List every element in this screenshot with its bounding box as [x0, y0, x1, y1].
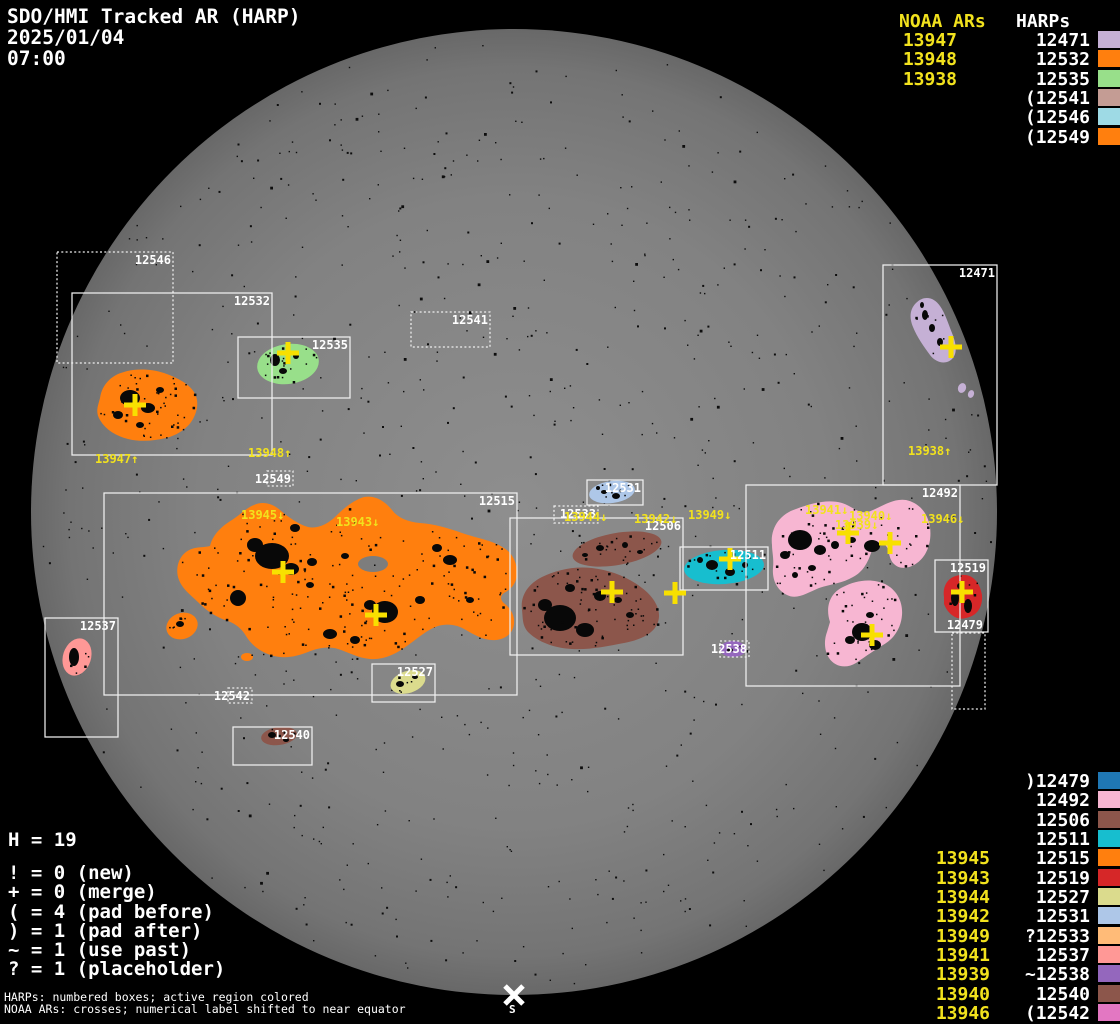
noise-speckle — [435, 471, 436, 472]
sunspot-speckle — [449, 596, 451, 598]
sunspot-speckle — [411, 681, 413, 683]
sunspot-speckle — [375, 544, 378, 547]
sunspot-speckle — [607, 596, 609, 598]
noaa-ar-label: 13949↓ — [688, 509, 731, 521]
sunspot-speckle — [865, 553, 868, 556]
sunspot-speckle — [165, 405, 167, 407]
noaa-column-header: NOAA ARs — [899, 11, 986, 32]
noise-speckle — [241, 160, 243, 162]
noise-speckle — [65, 489, 66, 490]
sunspot-speckle — [896, 555, 898, 557]
noise-speckle — [283, 683, 284, 684]
color-swatch — [1098, 985, 1120, 1002]
noise-speckle — [688, 209, 689, 210]
noise-speckle — [744, 248, 745, 249]
noise-speckle — [656, 432, 657, 433]
noise-speckle — [570, 385, 571, 386]
noise-speckle — [858, 207, 859, 208]
sunspot-speckle — [897, 535, 899, 537]
sunspot-speckle — [500, 592, 502, 594]
sunspot-speckle — [627, 625, 629, 627]
noise-speckle — [404, 358, 407, 361]
noise-speckle — [340, 479, 341, 480]
sunspot-speckle — [233, 592, 235, 594]
noise-speckle — [693, 719, 694, 720]
noise-speckle — [419, 709, 420, 710]
sunspot-speckle — [595, 589, 598, 592]
noise-speckle — [819, 325, 820, 326]
sunspot-speckle — [384, 630, 386, 632]
sunspot-speckle — [643, 615, 645, 617]
noise-speckle — [892, 269, 893, 270]
noise-speckle — [784, 468, 785, 469]
sunspot-speckle — [584, 588, 587, 591]
sunspot-speckle — [561, 624, 563, 626]
color-swatch — [1098, 907, 1120, 924]
noise-speckle — [742, 619, 743, 620]
noise-speckle — [734, 263, 736, 265]
sunspot-speckle — [88, 656, 90, 658]
sunspot-speckle — [371, 638, 373, 640]
noise-speckle — [93, 547, 94, 548]
noise-speckle — [101, 528, 102, 529]
sunspot-speckle — [375, 576, 377, 578]
noise-speckle — [637, 325, 639, 327]
sunspot-speckle — [302, 643, 305, 646]
noise-speckle — [270, 187, 273, 190]
noise-speckle — [206, 420, 207, 421]
noise-speckle — [690, 733, 692, 735]
noise-speckle — [296, 152, 297, 153]
noise-speckle — [703, 701, 704, 702]
sunspot-speckle — [810, 584, 813, 587]
sunspot-speckle — [491, 619, 493, 621]
sunspot-speckle — [384, 591, 386, 593]
sunspot-speckle — [329, 597, 331, 599]
noaa-harp-row: 12492 — [0, 790, 1120, 809]
sunspot — [814, 545, 826, 555]
sunspot-speckle — [448, 550, 450, 552]
harp-number: 12506 — [1036, 810, 1090, 831]
color-swatch — [1098, 108, 1120, 125]
noise-speckle — [288, 184, 289, 185]
noise-speckle — [312, 193, 313, 194]
noise-speckle — [253, 178, 254, 179]
harp-number: ?12533 — [1025, 926, 1090, 947]
sunspot-speckle — [246, 530, 249, 533]
noise-speckle — [420, 379, 421, 380]
noise-speckle — [885, 314, 887, 316]
noise-speckle — [335, 661, 336, 662]
noise-speckle — [550, 378, 553, 381]
noise-speckle — [580, 766, 583, 769]
sunspot — [864, 540, 880, 552]
sunspot-speckle — [850, 546, 852, 548]
sunspot-speckle — [332, 586, 335, 589]
sunspot-speckle — [580, 603, 582, 605]
sunspot-speckle — [625, 556, 627, 558]
noise-speckle — [194, 658, 195, 659]
noise-speckle — [180, 206, 181, 207]
noise-speckle — [666, 766, 667, 767]
noise-speckle — [523, 717, 524, 718]
legend-item: + = 0 (merge) — [8, 883, 225, 902]
noise-speckle — [322, 410, 323, 411]
sunspot-speckle — [862, 626, 865, 629]
color-swatch — [1098, 791, 1120, 808]
noaa-ar-number: 13945 — [936, 848, 990, 869]
sunspot-speckle — [144, 398, 146, 400]
noise-speckle — [441, 717, 442, 718]
noaa-ar-label: 13939↓ — [835, 519, 878, 531]
noise-speckle — [792, 174, 794, 176]
noise-speckle — [219, 191, 221, 193]
noise-speckle — [665, 622, 666, 623]
noise-speckle — [834, 717, 835, 718]
noise-speckle — [707, 326, 709, 328]
sunspot-speckle — [136, 388, 139, 391]
sunspot-speckle — [112, 411, 115, 414]
sunspot-speckle — [247, 559, 250, 562]
noise-speckle — [86, 368, 87, 369]
noise-speckle — [427, 343, 429, 345]
noise-speckle — [453, 160, 454, 161]
noaa-harp-row: 12506 — [0, 810, 1120, 829]
sunspot-speckle — [454, 589, 456, 591]
sunspot-speckle — [574, 626, 577, 629]
sunspot-speckle — [585, 558, 588, 561]
noise-speckle — [653, 574, 655, 576]
sunspot-speckle — [134, 377, 136, 379]
sunspot-speckle — [465, 596, 468, 599]
sunspot-speckle — [322, 602, 324, 604]
sunspot-speckle — [272, 729, 274, 731]
noise-speckle — [635, 263, 638, 266]
noise-speckle — [361, 397, 362, 398]
sunspot-speckle — [744, 564, 746, 566]
noise-speckle — [401, 495, 403, 497]
noise-speckle — [77, 336, 78, 337]
sunspot — [247, 538, 263, 552]
noise-speckle — [342, 215, 343, 216]
noise-speckle — [399, 208, 401, 210]
sunspot-speckle — [883, 607, 885, 609]
noise-speckle — [382, 426, 384, 428]
noise-speckle — [447, 263, 448, 264]
noise-speckle — [176, 448, 177, 449]
noise-speckle — [208, 188, 209, 189]
noise-speckle — [488, 688, 489, 689]
noise-speckle — [307, 471, 308, 472]
noise-speckle — [486, 260, 489, 263]
noise-speckle — [744, 388, 745, 389]
noise-speckle — [177, 749, 179, 751]
noise-speckle — [689, 220, 690, 221]
sunspot-speckle — [567, 583, 569, 585]
harp-count-label: H = 19 — [8, 829, 77, 851]
sunspot-speckle — [173, 424, 175, 426]
sunspot-speckle — [789, 540, 791, 542]
noise-speckle — [320, 439, 322, 441]
sunspot-speckle — [596, 621, 598, 623]
sunspot-speckle — [626, 593, 628, 595]
sunspot-speckle — [909, 543, 911, 545]
sunspot-speckle — [182, 562, 184, 564]
noise-speckle — [302, 247, 303, 248]
noise-speckle — [745, 220, 746, 221]
sunspot-speckle — [855, 659, 857, 661]
sunspot-speckle — [149, 423, 151, 425]
noise-speckle — [628, 402, 629, 403]
noaa-harp-row: (12541 — [0, 88, 1120, 107]
sunspot-speckle — [348, 592, 350, 594]
sunspot-speckle — [283, 362, 286, 365]
noise-speckle — [784, 296, 785, 297]
sunspot-speckle — [808, 523, 811, 526]
noise-speckle — [238, 245, 239, 246]
sunspot-speckle — [284, 626, 286, 628]
sunspot-speckle — [561, 621, 564, 624]
sunspot-speckle — [428, 618, 430, 620]
sunspot-speckle — [717, 577, 720, 580]
sunspot-speckle — [851, 555, 854, 558]
sunspot-speckle — [551, 642, 553, 644]
sunspot-speckle — [140, 378, 142, 380]
sunspot-speckle — [293, 381, 296, 384]
sunspot-speckle — [361, 610, 364, 613]
sunspot-speckle — [694, 559, 696, 561]
noise-speckle — [714, 398, 715, 399]
noise-speckle — [688, 165, 689, 166]
sunspot — [626, 612, 634, 618]
color-swatch — [1098, 869, 1120, 886]
color-swatch — [1098, 128, 1120, 145]
sunspot-speckle — [881, 619, 883, 621]
noise-speckle — [87, 579, 88, 580]
noise-speckle — [687, 345, 688, 346]
noise-speckle — [579, 650, 580, 651]
noise-speckle — [43, 546, 44, 547]
sunspot-speckle — [926, 315, 929, 318]
noise-speckle — [421, 461, 422, 462]
noise-speckle — [467, 232, 469, 234]
sunspot-speckle — [85, 653, 87, 655]
sunspot-speckle — [409, 574, 411, 576]
sunspot-speckle — [443, 575, 445, 577]
noise-speckle — [183, 478, 184, 479]
noise-speckle — [990, 541, 992, 543]
noise-speckle — [700, 292, 701, 293]
sunspot-speckle — [857, 641, 859, 643]
sunspot-speckle — [485, 635, 487, 637]
noise-speckle — [540, 686, 541, 687]
noise-speckle — [906, 298, 907, 299]
legend-item: ( = 4 (pad before) — [8, 903, 225, 922]
noise-speckle — [890, 563, 891, 564]
noise-speckle — [867, 567, 868, 568]
noise-speckle — [757, 335, 758, 336]
sunspot-speckle — [403, 633, 406, 636]
noise-speckle — [612, 261, 613, 262]
noise-speckle — [163, 548, 164, 549]
sunspot-speckle — [177, 415, 179, 417]
noise-speckle — [717, 284, 718, 285]
sunspot-speckle — [552, 576, 554, 578]
noaa-ar-number: 13948 — [903, 49, 957, 70]
sunspot-speckle — [857, 642, 859, 644]
noise-speckle — [538, 194, 539, 195]
sunspot-speckle — [477, 615, 479, 617]
noaa-ar-label: 13944↓ — [564, 511, 607, 523]
noise-speckle — [223, 400, 224, 401]
sunspot-speckle — [614, 604, 616, 606]
sunspot-speckle — [602, 636, 604, 638]
sunspot-speckle — [369, 638, 371, 640]
sunspot-speckle — [915, 317, 918, 320]
sunspot-speckle — [351, 603, 354, 606]
noise-speckle — [506, 338, 507, 339]
noise-speckle — [665, 690, 666, 691]
noise-speckle — [602, 434, 603, 435]
sunspot-speckle — [608, 573, 611, 576]
noaa-ar-number: 13942 — [936, 906, 990, 927]
noise-speckle — [295, 276, 296, 277]
sunspot-speckle — [277, 376, 280, 379]
sunspot-speckle — [826, 537, 828, 539]
noise-speckle — [698, 406, 699, 407]
noise-speckle — [519, 349, 520, 350]
sunspot-speckle — [456, 537, 458, 539]
noise-speckle — [124, 333, 125, 334]
sunspot-speckle — [533, 604, 536, 607]
sunspot-speckle — [121, 400, 124, 403]
noise-speckle — [129, 238, 130, 239]
sunspot-speckle — [583, 631, 585, 633]
sunspot-speckle — [579, 577, 581, 579]
noise-speckle — [915, 594, 917, 596]
noise-speckle — [251, 241, 252, 242]
sunspot — [306, 582, 314, 588]
noise-speckle — [574, 677, 575, 678]
noise-speckle — [299, 501, 300, 502]
sunspot-speckle — [374, 565, 376, 567]
sunspot-speckle — [486, 556, 489, 559]
sunspot-speckle — [784, 575, 786, 577]
sunspot-speckle — [421, 553, 423, 555]
sunspot-speckle — [272, 607, 274, 609]
sunspot-speckle — [473, 571, 476, 574]
sunspot-speckle — [432, 531, 434, 533]
sunspot-speckle — [173, 627, 175, 629]
harp-number: (12549 — [1025, 127, 1090, 148]
sunspot-speckle — [306, 363, 308, 365]
sunspot-speckle — [128, 397, 131, 400]
sunspot-speckle — [304, 568, 307, 571]
sunspot-speckle — [243, 571, 245, 573]
noise-speckle — [808, 404, 810, 406]
sunspot-speckle — [834, 643, 836, 645]
noise-speckle — [279, 153, 280, 154]
sunspot-speckle — [352, 646, 354, 648]
sunspot-speckle — [423, 560, 425, 562]
noise-speckle — [528, 307, 529, 308]
color-swatch — [1098, 965, 1120, 982]
sunspot-speckle — [915, 535, 918, 538]
noaa-ar-label: 13946↓ — [921, 513, 964, 525]
sunspot-speckle — [267, 355, 270, 358]
sunspot-speckle — [647, 634, 649, 636]
noise-speckle — [280, 441, 281, 442]
sunspot-speckle — [146, 375, 149, 378]
sunspot-speckle — [628, 620, 630, 622]
noise-speckle — [778, 382, 780, 384]
noise-speckle — [538, 734, 539, 735]
sunspot-speckle — [595, 576, 597, 578]
noise-speckle — [477, 160, 478, 161]
sunspot-speckle — [346, 599, 348, 601]
noise-speckle — [266, 705, 267, 706]
noise-speckle — [127, 537, 128, 538]
sunspot-speckle — [458, 600, 460, 602]
noise-speckle — [794, 373, 795, 374]
noise-speckle — [533, 415, 534, 416]
sunspot-speckle — [265, 375, 267, 377]
sunspot-speckle — [627, 629, 629, 631]
sunspot-speckle — [150, 406, 153, 409]
sunspot-speckle — [566, 641, 568, 643]
sunspot-speckle — [550, 629, 552, 631]
noise-speckle — [644, 254, 645, 255]
sunspot-speckle — [403, 578, 405, 580]
sunspot — [136, 422, 144, 428]
noise-speckle — [805, 203, 806, 204]
noise-speckle — [762, 388, 765, 391]
legend-symbol-list: ! = 0 (new)+ = 0 (merge)( = 4 (pad befor… — [8, 864, 225, 980]
sunspot-speckle — [352, 589, 354, 591]
sunspot-speckle — [217, 552, 219, 554]
noise-speckle — [560, 551, 561, 552]
noise-speckle — [663, 498, 665, 500]
sunspot-speckle — [974, 594, 977, 597]
noise-speckle — [583, 502, 584, 503]
sunspot-speckle — [657, 623, 660, 626]
noise-speckle — [509, 194, 510, 195]
noise-speckle — [347, 226, 348, 227]
noise-speckle — [572, 530, 574, 532]
noise-speckle — [200, 199, 201, 200]
noise-speckle — [330, 689, 331, 690]
sunspot-speckle — [827, 540, 830, 543]
noise-speckle — [663, 277, 664, 278]
sunspot-speckle — [463, 545, 465, 547]
sunspot-speckle — [905, 565, 908, 568]
noise-speckle — [678, 269, 679, 270]
noise-speckle — [573, 407, 574, 408]
noise-speckle — [396, 235, 397, 236]
noise-speckle — [825, 301, 827, 303]
sunspot-speckle — [183, 429, 185, 431]
noise-speckle — [570, 420, 571, 421]
noise-speckle — [739, 508, 740, 509]
sunspot-speckle — [290, 544, 292, 546]
noise-speckle — [631, 186, 632, 187]
noise-speckle — [889, 304, 890, 305]
noise-speckle — [227, 362, 228, 363]
sunspot-speckle — [824, 524, 827, 527]
sunspot-speckle — [125, 420, 128, 423]
noise-speckle — [412, 447, 414, 449]
sunspot-speckle — [579, 546, 581, 548]
